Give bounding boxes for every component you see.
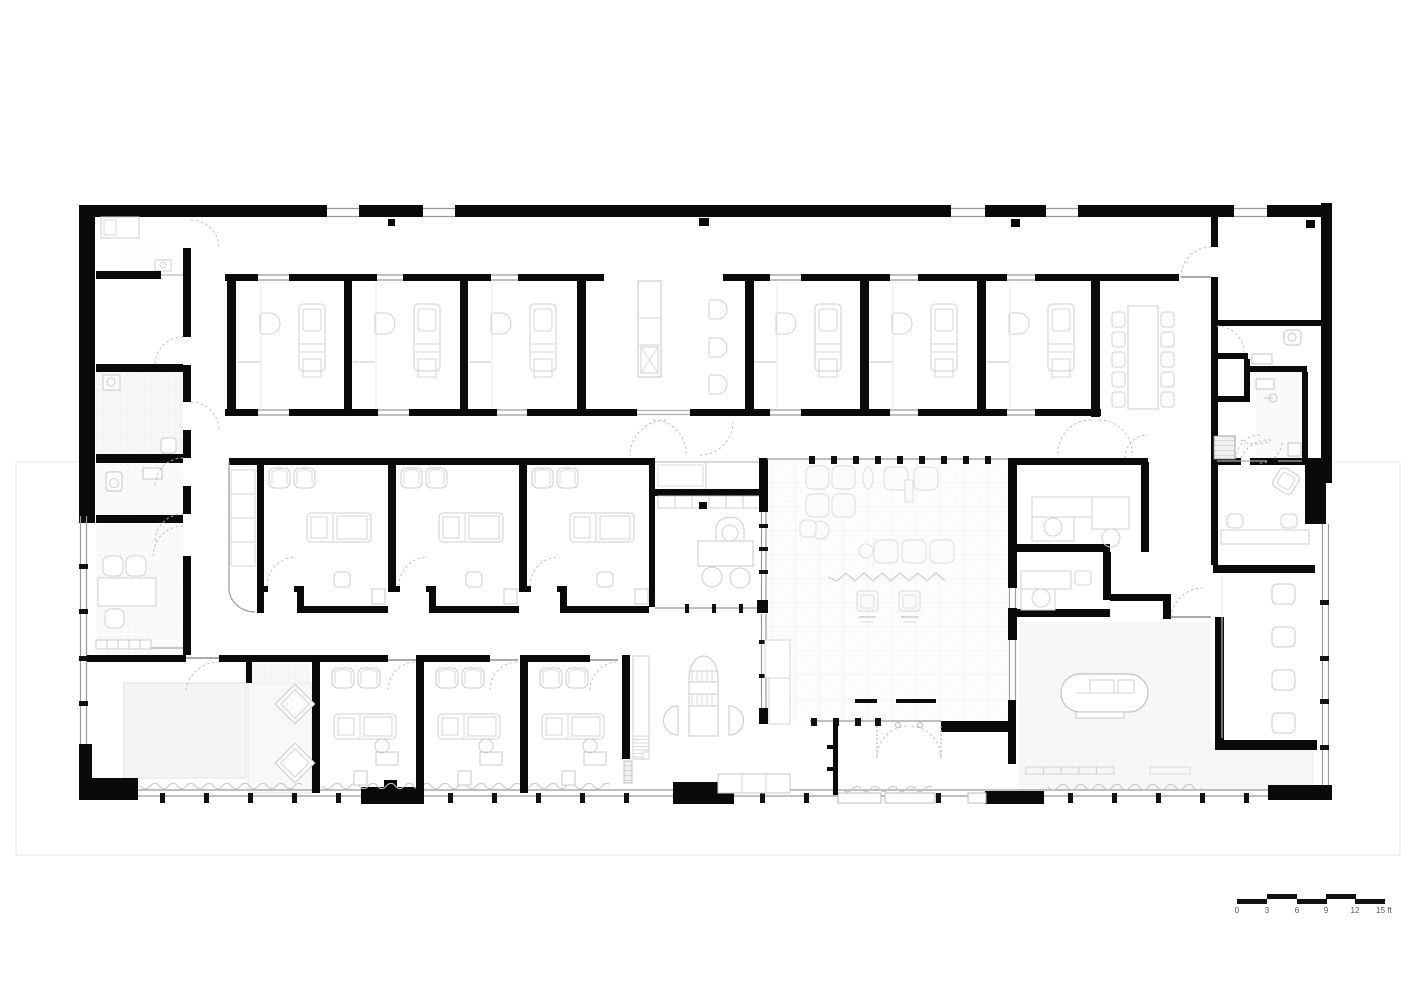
svg-text:12: 12 xyxy=(1351,906,1360,915)
svg-text:0: 0 xyxy=(1235,906,1240,915)
svg-text:6: 6 xyxy=(1295,906,1300,915)
svg-text:9: 9 xyxy=(1324,906,1329,915)
svg-text:15 ft: 15 ft xyxy=(1376,906,1392,915)
svg-text:3: 3 xyxy=(1265,906,1270,915)
